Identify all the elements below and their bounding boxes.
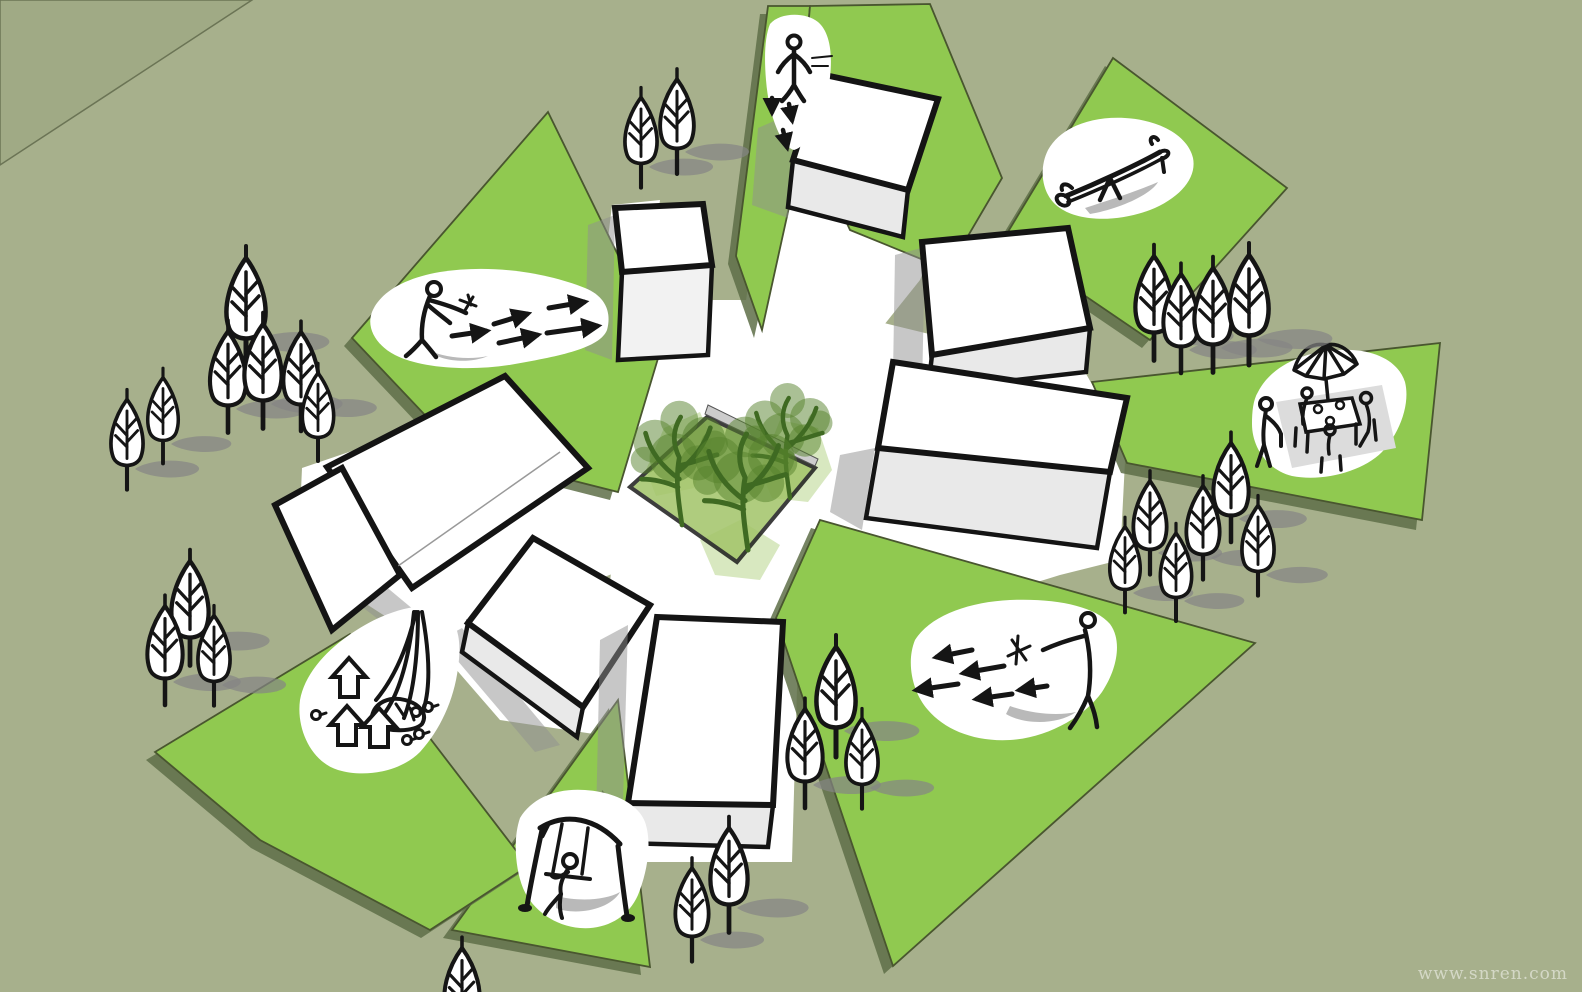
terrain-corner-facet (0, 0, 252, 165)
outline-tree (675, 858, 708, 962)
building-north-small (585, 204, 712, 360)
outline-tree (625, 88, 657, 188)
outline-tree (111, 390, 143, 490)
outline-tree (148, 368, 178, 463)
site-plan-canvas: www.snren.com (0, 0, 1582, 992)
site-plan-svg (0, 0, 1582, 992)
outline-tree (444, 937, 479, 992)
watermark: www.snren.com (1418, 964, 1568, 984)
outline-tree (660, 69, 694, 174)
